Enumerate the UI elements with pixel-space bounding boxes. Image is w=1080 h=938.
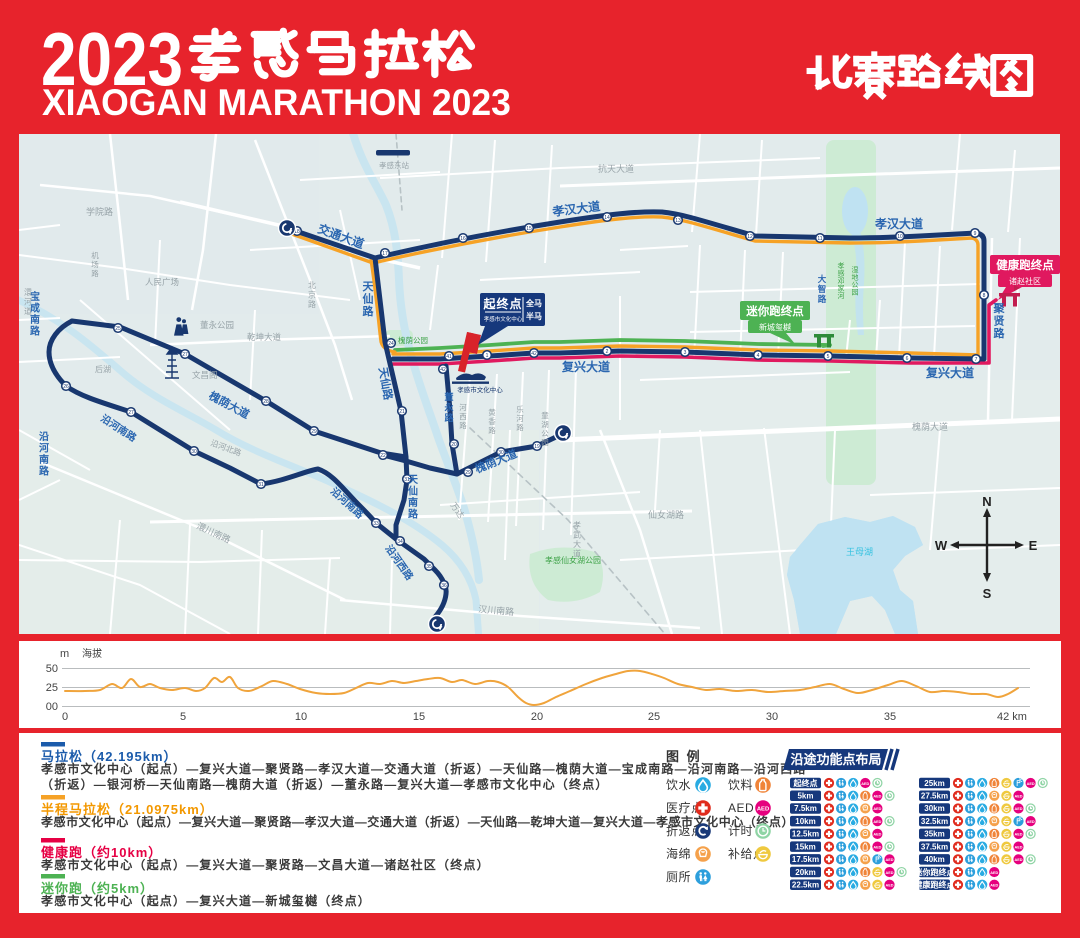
svg-text:孝感市文化中心: 孝感市文化中心 [457,385,503,394]
svg-text:全马: 全马 [525,298,542,308]
svg-text:30km: 30km [924,804,944,813]
svg-text:抗天大道: 抗天大道 [598,163,634,174]
svg-text:26: 26 [63,384,69,390]
svg-text:15km: 15km [795,842,815,851]
svg-text:乾坤大道: 乾坤大道 [247,332,282,342]
svg-text:王母湖: 王母湖 [846,547,873,557]
svg-text:AED: AED [757,807,769,813]
svg-text:孝感市文化中心: 孝感市文化中心 [484,315,523,323]
svg-text:聚贤路: 聚贤路 [993,302,1006,340]
svg-text:湿地公园: 湿地公园 [852,265,859,297]
svg-text:24: 24 [388,341,394,347]
svg-text:AED: AED [728,801,754,815]
svg-text:董永公园: 董永公园 [200,320,234,330]
svg-text:6: 6 [906,356,909,362]
svg-text:16: 16 [460,236,466,242]
svg-text:41: 41 [446,354,452,360]
svg-text:文昌阁: 文昌阁 [192,370,218,380]
svg-text:28: 28 [263,399,269,405]
svg-text:后湖: 后湖 [95,364,111,374]
svg-text:22: 22 [380,453,386,459]
svg-text:AED: AED [1014,833,1022,837]
svg-text:5km: 5km [797,792,813,801]
svg-text:北京路: 北京路 [308,281,316,309]
svg-text:42 km: 42 km [997,711,1027,723]
svg-text:大智路: 大智路 [817,274,827,304]
svg-text:天仙南路: 天仙南路 [408,474,419,521]
svg-text:AED: AED [873,807,881,811]
svg-text:AED: AED [873,795,881,799]
svg-text:E: E [1029,538,1038,553]
svg-text:AED: AED [873,820,881,824]
svg-text:35: 35 [884,711,896,723]
svg-text:复兴大道: 复兴大道 [925,365,974,380]
svg-text:复兴大道: 复兴大道 [561,359,610,374]
svg-text:20: 20 [451,442,457,448]
svg-text:37.5km: 37.5km [921,842,948,851]
svg-text:黄香路: 黄香路 [488,407,496,435]
svg-text:图 例: 图 例 [666,749,702,764]
svg-text:孝感市文化中心（起点）—复兴大道—聚贤路—文昌大道—诸赵社区: 孝感市文化中心（起点）—复兴大道—聚贤路—文昌大道—诸赵社区（终点） [40,857,490,872]
svg-text:27: 27 [128,410,134,416]
svg-text:25km: 25km [924,779,944,788]
svg-text:饮料: 饮料 [728,778,753,792]
svg-text:AED: AED [885,858,893,862]
svg-text:14: 14 [604,215,610,221]
svg-text:健康跑终点: 健康跑终点 [915,880,955,890]
svg-text:29: 29 [311,429,317,435]
svg-text:21: 21 [399,409,405,415]
svg-text:17.5km: 17.5km [792,855,819,864]
svg-text:AED: AED [1027,820,1035,824]
svg-text:XIAOGAN MARATHON 2023: XIAOGAN MARATHON 2023 [42,81,511,123]
svg-text:AED: AED [873,845,881,849]
svg-text:学院路: 学院路 [86,206,113,217]
svg-text:起终点: 起终点 [482,296,522,311]
svg-text:10: 10 [295,711,307,723]
svg-text:槐荫大道: 槐荫大道 [912,421,948,432]
svg-text:35km: 35km [924,830,944,839]
svg-text:25: 25 [648,711,660,723]
svg-text:00: 00 [46,701,58,713]
svg-text:童湖公园: 童湖公园 [541,410,549,447]
svg-text:20: 20 [531,711,543,723]
svg-text:孝感东站: 孝感东站 [379,160,409,170]
svg-text:27.5km: 27.5km [921,792,948,801]
svg-text:36: 36 [441,583,447,589]
svg-text:32.5km: 32.5km [921,817,948,826]
svg-text:乐河路: 乐河路 [516,404,524,432]
svg-text:5: 5 [180,711,186,723]
svg-text:迷你跑终点: 迷你跑终点 [914,867,955,877]
svg-text:8: 8 [983,293,986,299]
svg-text:沿河南路: 沿河南路 [39,430,50,478]
svg-text:30: 30 [191,449,197,455]
svg-text:AED: AED [1014,845,1022,849]
svg-text:孝汉大道: 孝汉大道 [874,216,923,231]
svg-text:15: 15 [526,226,532,232]
svg-text:迷你跑终点: 迷你跑终点 [745,304,804,318]
svg-text:27: 27 [182,352,188,358]
svg-text:34: 34 [397,539,403,545]
svg-text:31: 31 [258,482,264,488]
svg-text:AED: AED [1014,807,1022,811]
svg-text:AED: AED [885,871,893,875]
svg-text:9: 9 [974,231,977,237]
svg-text:33: 33 [373,521,379,527]
svg-text:N: N [982,494,991,509]
svg-text:起终点: 起终点 [793,778,818,788]
svg-text:15: 15 [413,711,425,723]
svg-text:W: W [935,538,948,553]
svg-text:50: 50 [46,663,58,675]
svg-text:42: 42 [531,351,537,357]
svg-text:澴河道: 澴河道 [24,287,32,316]
svg-text:AED: AED [861,782,869,786]
svg-text:孝感市文化中心（起点）—复兴大道—新城玺樾（终点）: 孝感市文化中心（起点）—复兴大道—新城玺樾（终点） [40,893,371,908]
svg-text:机场路: 机场路 [91,250,99,278]
svg-text:半马: 半马 [526,311,542,321]
svg-text:健康跑终点: 健康跑终点 [996,258,1054,272]
svg-text:13: 13 [675,218,681,224]
svg-text:槐荫公园: 槐荫公园 [398,335,428,345]
svg-text:4: 4 [757,353,760,359]
svg-text:AED: AED [885,884,893,888]
svg-text:40km: 40km [924,855,944,864]
svg-text:孝感邓家河: 孝感邓家河 [838,262,845,300]
svg-text:仙女湖路: 仙女湖路 [648,509,684,520]
svg-text:7: 7 [975,357,978,363]
svg-text:计时: 计时 [728,824,753,838]
svg-text:m: m [60,648,69,660]
svg-text:人民广场: 人民广场 [145,277,179,287]
svg-text:河西路: 河西路 [459,403,467,430]
svg-text:19: 19 [534,444,540,450]
svg-text:厕所: 厕所 [666,870,691,884]
svg-text:22.5km: 22.5km [792,881,819,890]
svg-text:5: 5 [827,354,830,360]
svg-text:11: 11 [817,236,822,242]
svg-text:35: 35 [426,564,432,570]
svg-text:20km: 20km [795,868,815,877]
svg-text:30: 30 [766,711,778,723]
svg-text:饮水: 饮水 [666,778,691,792]
svg-text:（折返）—银河桥—天仙南路—槐荫大道（折返）—董永路—复兴大: （折返）—银河桥—天仙南路—槐荫大道（折返）—董永路—复兴大道—孝感市文化中心（… [41,777,609,792]
svg-text:董永路: 董永路 [443,391,454,423]
svg-text:3: 3 [684,350,687,356]
svg-text:1: 1 [486,353,489,359]
svg-text:诸赵社区: 诸赵社区 [1009,276,1041,286]
svg-text:AED: AED [873,833,881,837]
svg-text:孝感仙女湖公园: 孝感仙女湖公园 [545,555,601,565]
svg-text:天仙路: 天仙路 [363,280,375,318]
svg-text:孝武大道: 孝武大道 [573,521,581,559]
svg-text:AED: AED [1027,782,1035,786]
svg-text:10km: 10km [795,817,815,826]
svg-text:2: 2 [606,349,609,355]
svg-text:0: 0 [62,711,68,723]
svg-text:沿途功能点布局: 沿途功能点布局 [790,752,881,767]
svg-text:AED: AED [1014,795,1022,799]
svg-text:12.5km: 12.5km [792,830,819,839]
svg-text:17: 17 [382,251,388,257]
svg-text:42: 42 [440,367,446,373]
svg-text:25: 25 [46,682,58,694]
svg-text:29: 29 [465,470,471,476]
svg-text:7.5km: 7.5km [794,804,817,813]
svg-text:10: 10 [897,234,903,240]
svg-text:新城玺樾: 新城玺樾 [759,322,791,332]
svg-text:S: S [983,586,992,601]
svg-text:海拔: 海拔 [82,647,102,660]
svg-text:AED: AED [990,884,998,888]
svg-text:12: 12 [747,234,753,240]
svg-text:AED: AED [1014,858,1022,862]
svg-text:25: 25 [115,326,121,332]
svg-text:AED: AED [990,871,998,875]
svg-text:海绵: 海绵 [666,846,691,861]
